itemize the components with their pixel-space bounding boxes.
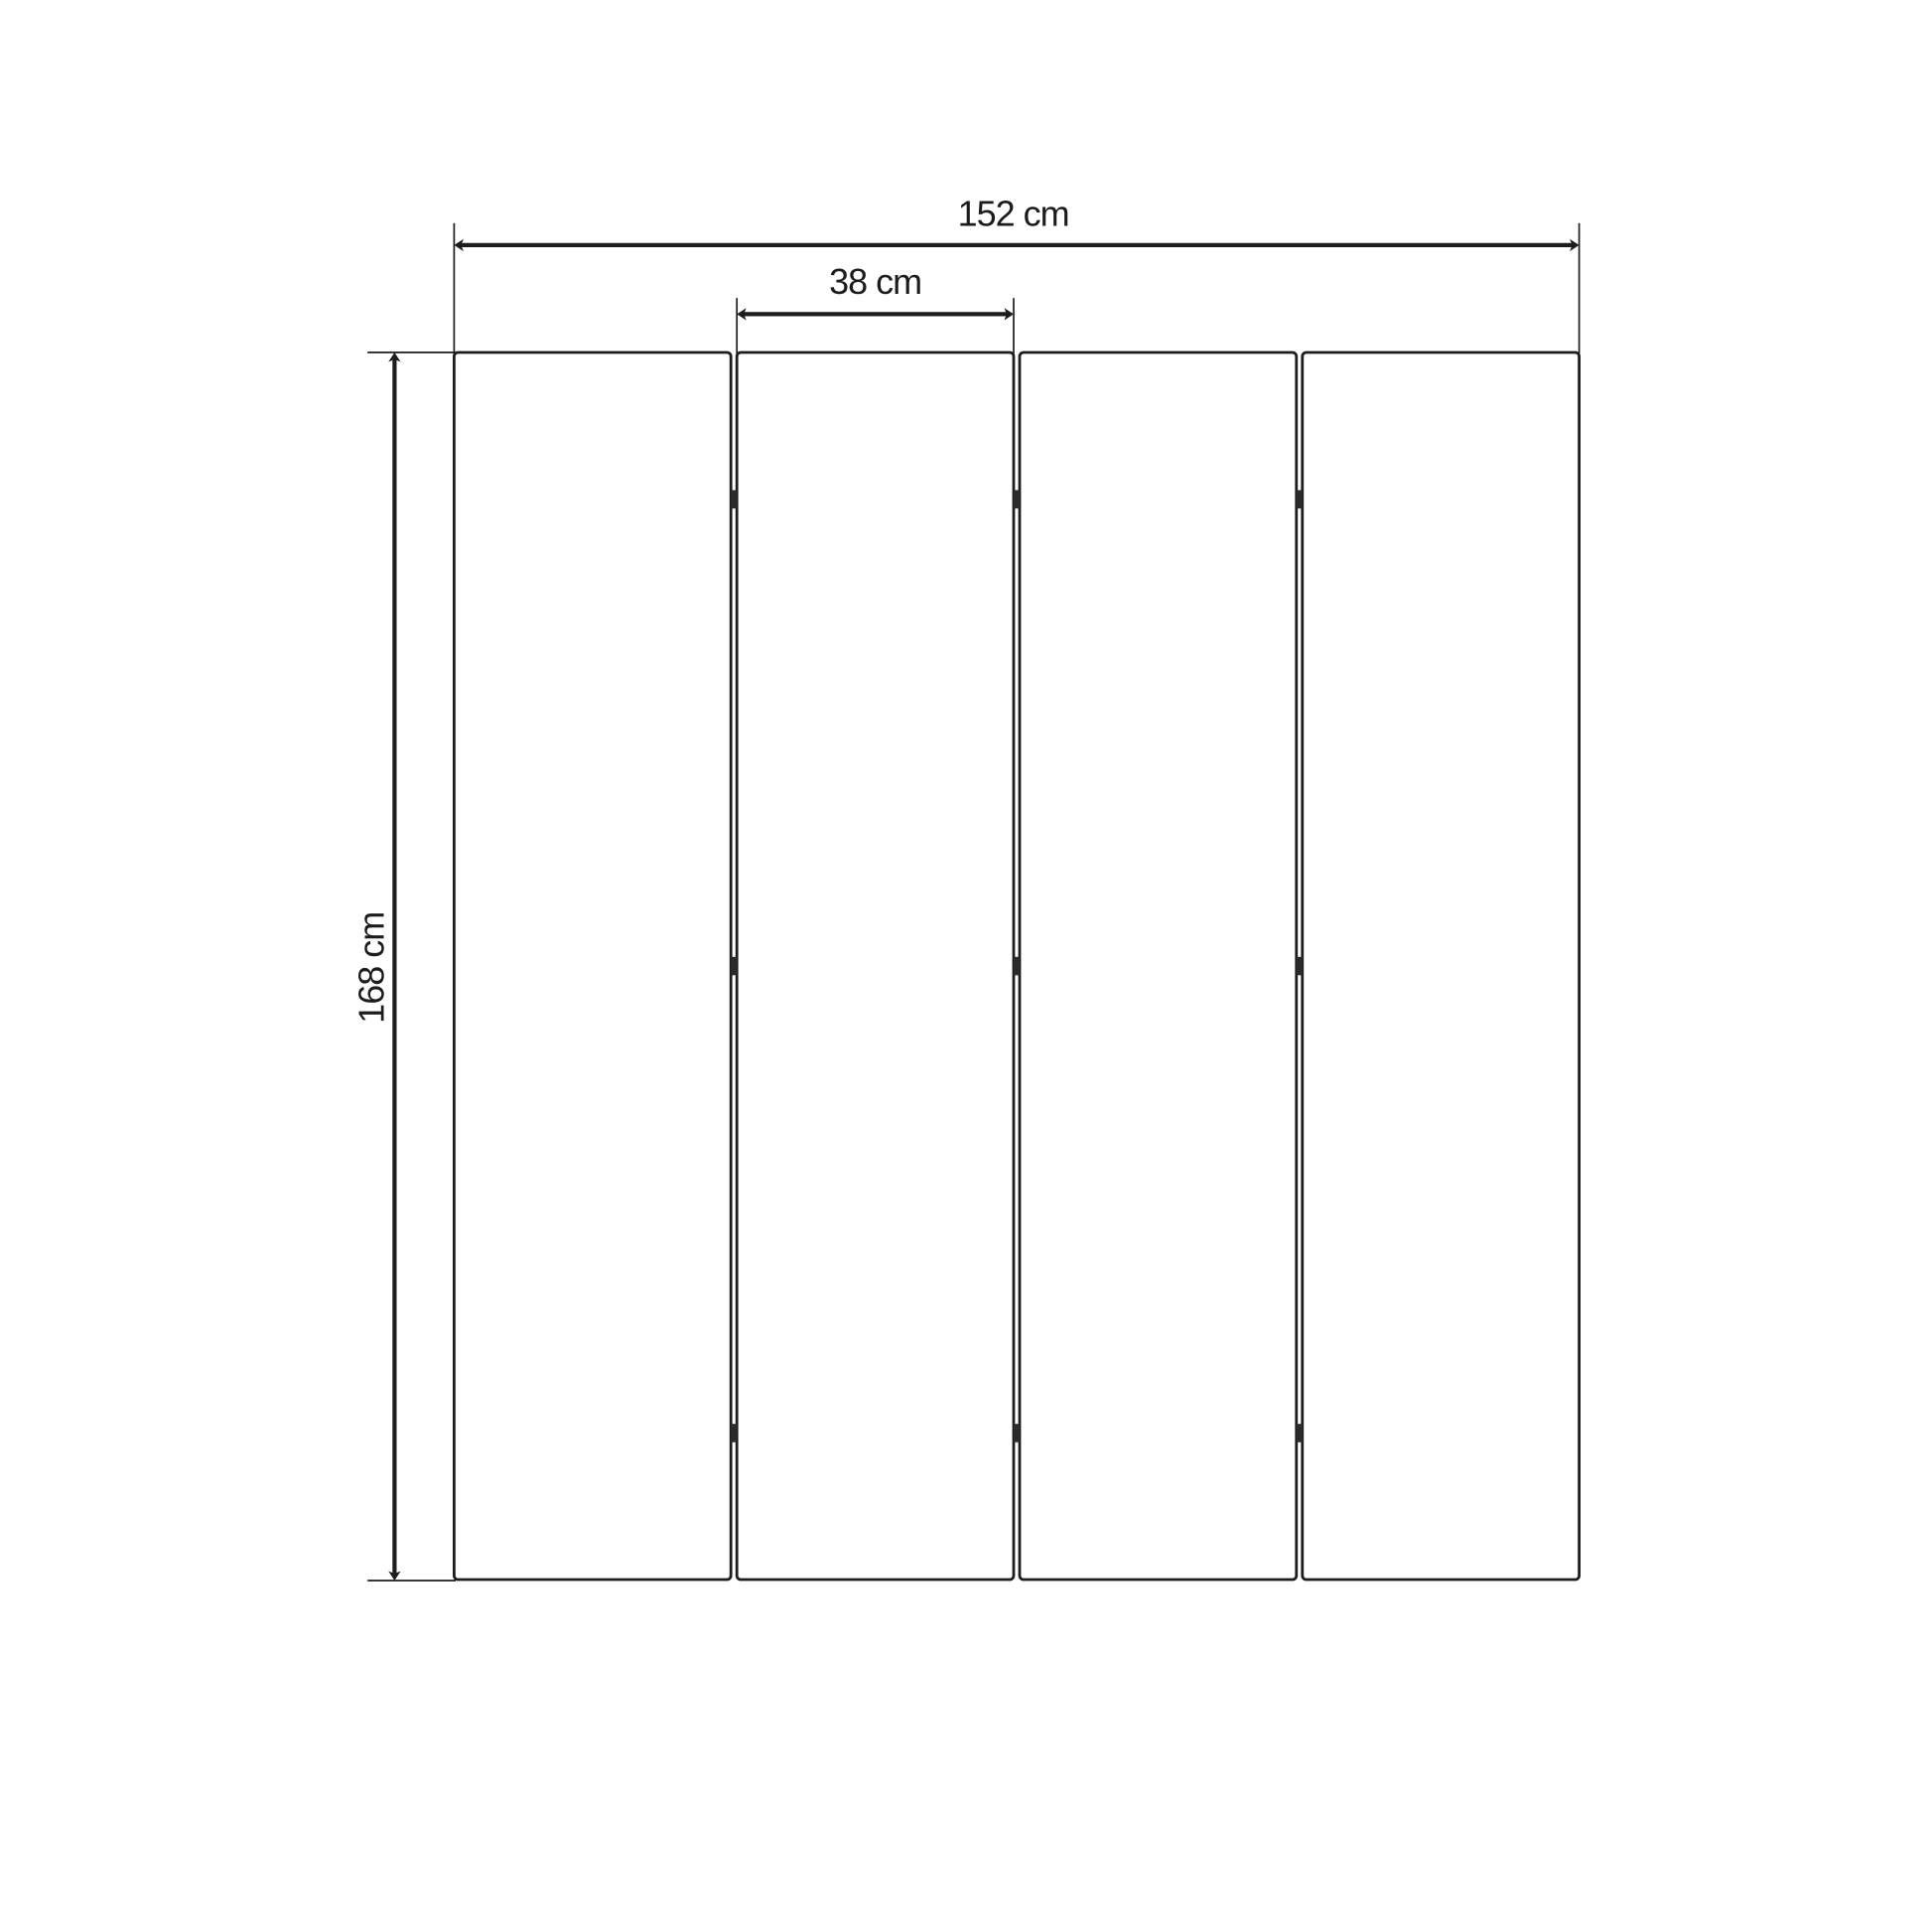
svg-text:152 cm: 152 cm [958,194,1069,234]
svg-text:168 cm: 168 cm [351,912,392,1024]
svg-text:38 cm: 38 cm [829,261,921,302]
